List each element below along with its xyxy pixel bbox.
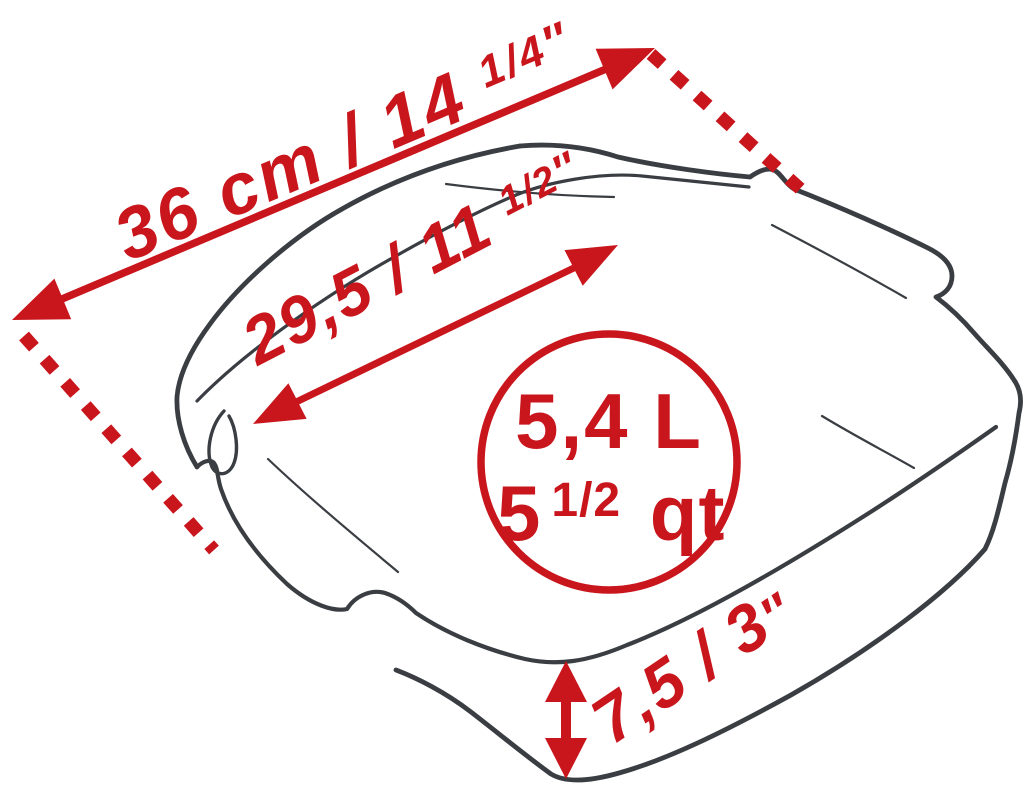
diagonal-arrowhead-lower <box>12 279 71 320</box>
inner-width-arrowhead-upper <box>565 245 619 286</box>
height-dimension-label: 7,5 / 3″ <box>578 571 805 758</box>
cavity-accent-near-left <box>268 459 398 572</box>
diagram-canvas: 36 cm / 14 1/4″ 29,5 / 11 1/2″ 7,5 / 3″ … <box>0 0 1024 786</box>
height-dimension-arrow <box>545 661 587 779</box>
dimension-diagram: 36 cm / 14 1/4″ 29,5 / 11 1/2″ 7,5 / 3″ … <box>0 0 1024 786</box>
diagonal-arrowhead-upper <box>596 48 655 89</box>
cavity-accent-near-right <box>822 416 914 468</box>
dimension-labels: 36 cm / 14 1/4″ 29,5 / 11 1/2″ 7,5 / 3″ … <box>103 10 806 757</box>
inner-width-arrowhead-lower <box>253 383 307 424</box>
capacity-label-quarts: 51/2 qt <box>497 469 725 557</box>
capacity-label-liters: 5,4 L <box>515 377 703 465</box>
cavity-accent-top-right <box>772 225 906 298</box>
